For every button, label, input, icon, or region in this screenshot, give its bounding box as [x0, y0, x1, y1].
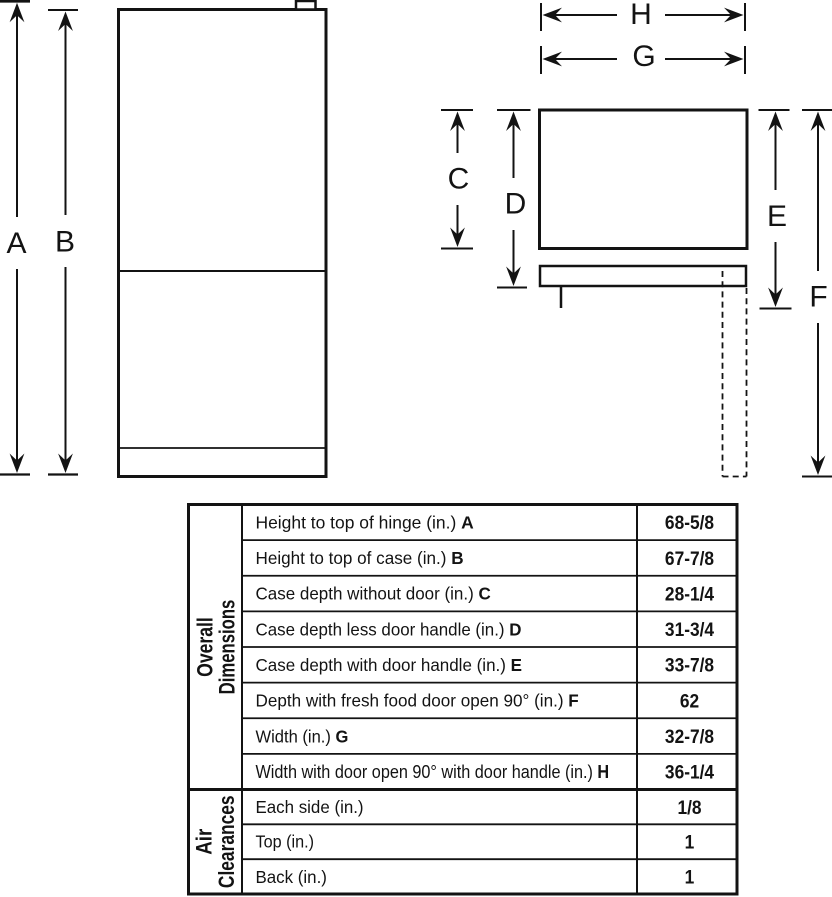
svg-text:Case depth with door handle (i: Case depth with door handle (in.) E	[256, 655, 522, 676]
svg-text:F: F	[809, 281, 827, 314]
svg-text:H: H	[630, 0, 652, 31]
svg-text:Back (in.): Back (in.)	[256, 866, 327, 887]
svg-text:31-3/4: 31-3/4	[665, 618, 715, 640]
svg-text:Case depth less door handle (i: Case depth less door handle (in.) D	[256, 619, 522, 640]
svg-text:32-7/8: 32-7/8	[665, 725, 714, 747]
svg-text:1/8: 1/8	[677, 796, 701, 818]
svg-text:Top (in.): Top (in.)	[256, 832, 314, 852]
svg-text:G: G	[632, 40, 655, 73]
svg-text:33-7/8: 33-7/8	[665, 654, 714, 676]
svg-text:Case depth without door (in.): Case depth without door (in.) C	[256, 583, 492, 604]
svg-text:1: 1	[685, 865, 695, 887]
svg-text:Height to top of case (in.) B: Height to top of case (in.) B	[256, 548, 464, 569]
svg-text:Height to top of hinge (in.) A: Height to top of hinge (in.) A	[256, 512, 474, 532]
svg-text:36-1/4: 36-1/4	[665, 761, 715, 783]
svg-text:Dimensions: Dimensions	[215, 600, 240, 695]
svg-text:Each side (in.): Each side (in.)	[256, 797, 364, 818]
svg-text:Depth with fresh food door ope: Depth with fresh food door open 90° (in.…	[256, 690, 579, 711]
svg-text:Width with door open 90° with: Width with door open 90° with door handl…	[256, 761, 610, 782]
svg-text:Air: Air	[193, 829, 217, 855]
svg-text:A: A	[6, 227, 26, 260]
svg-text:B: B	[55, 226, 75, 259]
svg-text:62: 62	[680, 689, 699, 711]
svg-text:68-5/8: 68-5/8	[665, 511, 714, 533]
svg-text:E: E	[767, 200, 787, 233]
svg-text:Width (in.) G: Width (in.) G	[256, 726, 349, 747]
svg-text:1: 1	[685, 831, 695, 853]
svg-text:28-1/4: 28-1/4	[665, 582, 715, 604]
svg-text:Clearances: Clearances	[215, 795, 239, 888]
svg-text:D: D	[505, 188, 527, 221]
svg-text:67-7/8: 67-7/8	[665, 547, 714, 569]
svg-text:C: C	[448, 163, 470, 196]
